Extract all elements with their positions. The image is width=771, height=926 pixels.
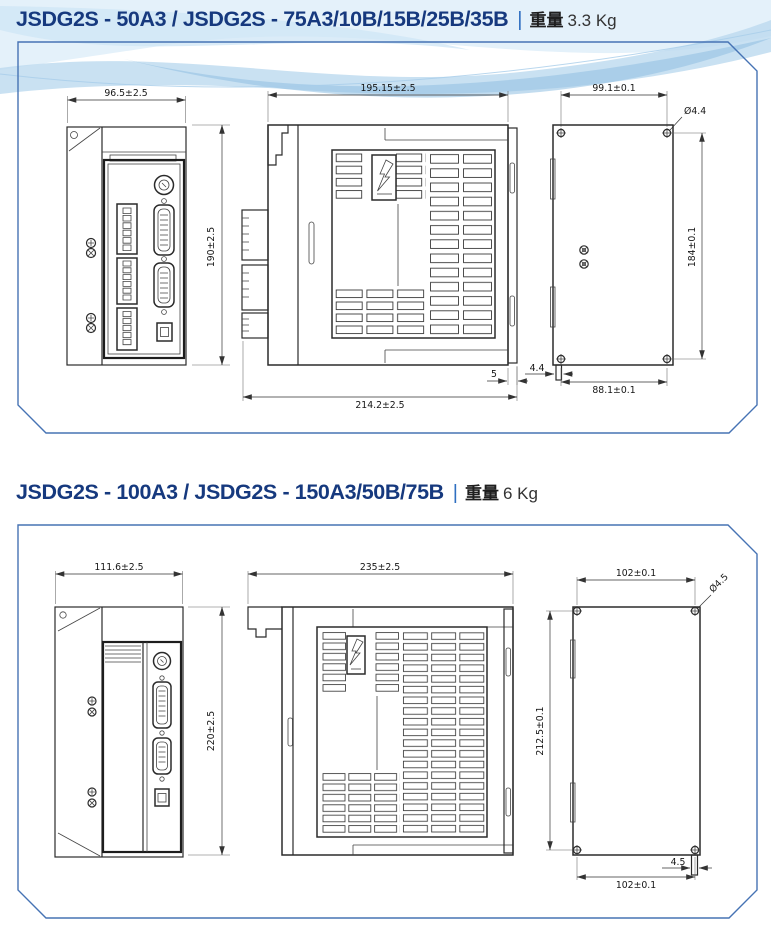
back-mounting-plate <box>504 609 513 853</box>
dsub-connector-cn1-s1 <box>154 205 174 255</box>
plate-slot <box>510 163 515 193</box>
weight-label: 重量 <box>465 479 499 504</box>
handle-slot <box>309 222 314 264</box>
back-screws-s1 <box>580 246 588 268</box>
weight-value: 6 Kg <box>503 484 538 504</box>
dim-side-bottom-width-s1: 214.2±2.5 <box>355 400 404 411</box>
mounting-hole <box>556 128 566 138</box>
dim-bottom-hole-pitch-s1: 88.1±0.1 <box>592 385 635 396</box>
dsub-connector-cn1-s2 <box>153 682 171 728</box>
dim-hole-pitch-height-s2: 212.5±0.1 <box>535 706 546 755</box>
dim-foot-width-s2: 4.5 <box>671 857 686 868</box>
knob-connector <box>154 653 171 670</box>
usb-port-s2 <box>155 789 169 806</box>
section2-model-text: JSDG2S - 100A3 / JSDG2S - 150A3/50B/75B <box>16 480 444 505</box>
screw-icon <box>160 676 164 680</box>
ground-screws-upper-s1 <box>87 239 96 258</box>
title-separator: | <box>517 9 522 32</box>
usb-port-s1 <box>157 323 172 341</box>
mounting-hole <box>690 845 700 855</box>
plate-slot <box>506 648 511 676</box>
dim-hole-pitch-width-s1: 99.1±0.1 <box>592 83 635 94</box>
dim-foot-width-s1: 4.4 <box>530 363 545 374</box>
terminal-block-2-s1 <box>117 258 137 304</box>
din-foot <box>692 855 698 875</box>
front-view-s2: 111.6±2.5 <box>55 562 183 857</box>
flange-hole <box>71 132 78 139</box>
high-voltage-warning-icon <box>347 636 365 674</box>
screw-icon <box>160 777 164 781</box>
flange-hole <box>60 612 66 618</box>
dim-hole-pitch-height-s1: 184±0.1 <box>687 227 698 267</box>
height-dimension-s1: 190±2.5 <box>192 125 230 365</box>
section2-drawing-panel: 111.6±2.5 <box>0 450 771 926</box>
vent-slots <box>322 772 400 835</box>
section2-title: JSDG2S - 100A3 / JSDG2S - 150A3/50B/75B … <box>16 479 538 505</box>
weight-label: 重量 <box>529 6 563 31</box>
height-dimension-s2: 220±2.5 <box>188 607 230 855</box>
high-voltage-warning-icon <box>372 155 396 200</box>
screw-icon <box>162 199 167 204</box>
screw-icon <box>160 731 164 735</box>
knob-connector <box>155 176 174 195</box>
vent-slots <box>322 631 348 693</box>
side-view-s1: 195.15±2.5 <box>242 83 528 411</box>
title-separator: | <box>453 482 458 505</box>
back-plate-outline <box>553 125 673 365</box>
dim-back-plate-offset-s1: 5 <box>491 369 497 380</box>
dim-hole-diameter-s2: Ø4.5 <box>707 572 730 595</box>
side-view-s2: 235±2.5 <box>248 562 513 855</box>
panel-border <box>18 525 757 918</box>
section1-model-text: JSDG2S - 50A3 / JSDG2S - 75A3/10B/15B/25… <box>16 7 508 32</box>
screw-icon <box>162 257 167 262</box>
vent-slots <box>396 152 426 202</box>
terminal-block-1-s1 <box>117 204 137 254</box>
vent-slots <box>429 152 495 336</box>
back-plate-outline <box>573 607 700 855</box>
dim-front-width-s1: 96.5±2.5 <box>104 88 147 99</box>
dim-side-top-width-s2: 235±2.5 <box>360 562 400 573</box>
dim-front-width-s2: 111.6±2.5 <box>94 562 143 573</box>
vent-slots <box>335 152 365 202</box>
mounting-hole <box>556 354 566 364</box>
section1-title: JSDG2S - 50A3 / JSDG2S - 75A3/10B/15B/25… <box>16 6 617 32</box>
screw-icon <box>162 310 167 315</box>
handle-slot <box>288 718 293 746</box>
back-view-s1: 99.1±0.1 Ø4.4 184±0.1 4.4 88.1±0. <box>525 83 706 396</box>
mounting-hook <box>248 607 282 637</box>
front-view-s1: 96.5±2.5 <box>67 88 186 365</box>
ground-screws-lower-s2 <box>88 788 96 807</box>
dim-hole-pitch-width-s2: 102±0.1 <box>616 568 656 579</box>
mounting-hole <box>662 354 672 364</box>
section1-drawing-panel: 96.5±2.5 <box>0 0 771 450</box>
plate-slot <box>510 296 515 326</box>
vent-slots <box>402 631 487 834</box>
vent-slots <box>375 631 401 693</box>
mounting-hook <box>268 125 288 165</box>
dsub-connector-cn2-s2 <box>153 738 171 774</box>
page: JSDG2S - 50A3 / JSDG2S - 75A3/10B/15B/25… <box>0 0 771 926</box>
vent-slots <box>335 288 427 336</box>
weight-value: 3.3 Kg <box>567 11 616 31</box>
ground-screws-upper-s2 <box>88 697 96 716</box>
connector-bumps-s1 <box>242 210 268 338</box>
back-view-s2: 102±0.1 Ø4.5 212.5±0.1 4.5 102±0.1 <box>535 568 731 891</box>
ground-screws-lower-s1 <box>87 314 96 333</box>
dim-height-s2: 220±2.5 <box>206 711 217 751</box>
front-panel-frame <box>103 642 181 852</box>
terminal-block-3-s1 <box>117 308 137 350</box>
dsub-connector-cn2-s1 <box>154 263 174 307</box>
dim-hole-diameter-s1: Ø4.4 <box>684 106 706 117</box>
dim-bottom-hole-pitch-s2: 102±0.1 <box>616 880 656 891</box>
din-foot <box>556 365 562 380</box>
dim-height-s1: 190±2.5 <box>206 227 217 267</box>
plate-slot <box>506 788 511 816</box>
dim-side-top-width-s1: 195.15±2.5 <box>360 83 415 94</box>
